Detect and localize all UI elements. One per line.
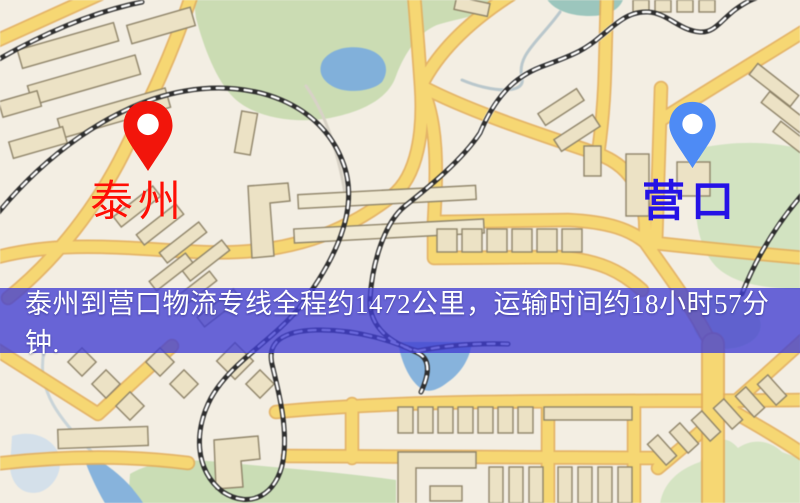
destination-pin-hole <box>682 114 702 134</box>
origin-marker-pin <box>120 99 176 173</box>
route-map-image: 泰州 营口 泰州到营口物流专线全程约1472公里，运输时间约18小时57分钟. <box>0 0 800 503</box>
destination-marker-pin <box>666 100 719 170</box>
destination-city-label: 营口 <box>642 181 740 224</box>
origin-city-label: 泰州 <box>90 181 186 224</box>
map-canvas <box>0 0 800 503</box>
route-info-text: 泰州到营口物流专线全程约1472公里，运输时间约18小时57分钟. <box>0 282 800 360</box>
destination-pin-shape <box>669 102 715 168</box>
origin-pin-hole <box>137 114 158 135</box>
route-info-banner: 泰州到营口物流专线全程约1472公里，运输时间约18小时57分钟. <box>0 288 800 353</box>
origin-pin-shape <box>124 101 173 171</box>
